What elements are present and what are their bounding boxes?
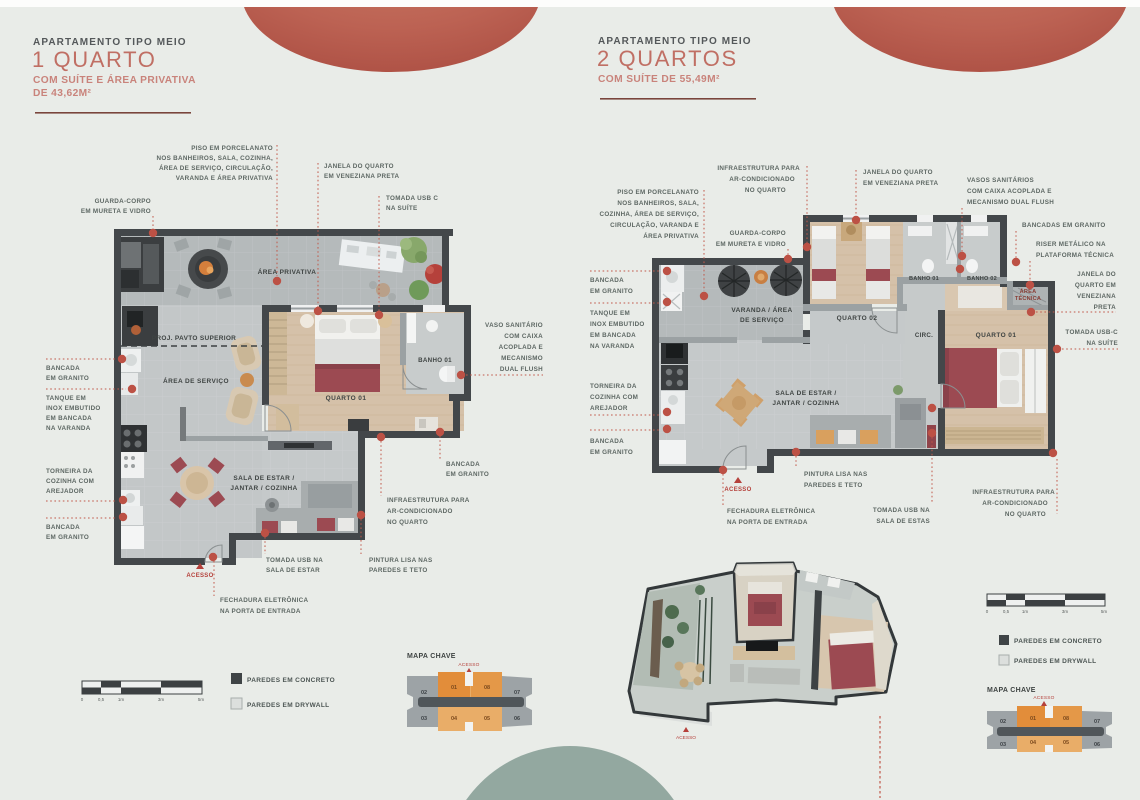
svg-text:EM GRANITO: EM GRANITO — [446, 471, 489, 478]
svg-text:ACESSO: ACESSO — [458, 662, 479, 668]
svg-text:BANCADA: BANCADA — [590, 438, 624, 445]
svg-text:3m: 3m — [158, 697, 165, 702]
svg-text:06: 06 — [514, 716, 520, 722]
svg-text:NA SUÍTE: NA SUÍTE — [386, 203, 418, 212]
svg-text:CIRCULAÇÃO, VARANDA E: CIRCULAÇÃO, VARANDA E — [610, 220, 699, 229]
svg-text:EM GRANITO: EM GRANITO — [46, 534, 89, 541]
svg-text:COZINHA COM: COZINHA COM — [46, 478, 94, 485]
svg-text:DE SERVIÇO: DE SERVIÇO — [740, 317, 784, 324]
svg-text:PLATAFORMA TÉCNICA: PLATAFORMA TÉCNICA — [1036, 250, 1114, 259]
svg-text:0,5: 0,5 — [1003, 609, 1010, 614]
svg-text:ACESSO: ACESSO — [724, 487, 751, 493]
svg-text:COZINHA COM: COZINHA COM — [590, 394, 638, 401]
svg-text:AREJADOR: AREJADOR — [46, 488, 84, 495]
svg-text:EM GRANITO: EM GRANITO — [590, 288, 633, 295]
svg-text:ÁREA PRIVATIVA: ÁREA PRIVATIVA — [258, 267, 317, 276]
svg-text:TOMADA USB NA: TOMADA USB NA — [266, 557, 323, 564]
svg-text:1m: 1m — [1022, 609, 1029, 614]
svg-text:BANCADA: BANCADA — [590, 277, 624, 284]
svg-text:NA PORTA DE ENTRADA: NA PORTA DE ENTRADA — [727, 519, 808, 526]
svg-text:INFRAESTRUTURA PARA: INFRAESTRUTURA PARA — [717, 165, 800, 172]
svg-text:PAREDES EM DRYWALL: PAREDES EM DRYWALL — [1014, 658, 1097, 665]
svg-text:EM GRANITO: EM GRANITO — [590, 449, 633, 456]
svg-text:TORNEIRA DA: TORNEIRA DA — [46, 468, 93, 475]
svg-text:ACOPLADA E: ACOPLADA E — [499, 344, 543, 351]
svg-text:06: 06 — [1094, 742, 1100, 748]
svg-text:07: 07 — [514, 690, 520, 696]
svg-text:VASO SANITÁRIO: VASO SANITÁRIO — [485, 320, 543, 329]
svg-text:PISO EM PORCELANATO: PISO EM PORCELANATO — [617, 189, 699, 196]
svg-text:CIRC.: CIRC. — [915, 332, 933, 339]
svg-text:SALA DE ESTAS: SALA DE ESTAS — [876, 518, 930, 525]
svg-text:PRETA: PRETA — [1094, 304, 1117, 311]
svg-text:EM GRANITO: EM GRANITO — [46, 375, 89, 382]
svg-text:EM MURETA E VIDRO: EM MURETA E VIDRO — [81, 208, 151, 215]
svg-text:1 QUARTO: 1 QUARTO — [32, 47, 156, 72]
svg-text:05: 05 — [484, 716, 490, 722]
svg-text:NA VARANDA: NA VARANDA — [590, 343, 635, 350]
svg-text:QUARTO 01: QUARTO 01 — [326, 395, 367, 402]
svg-text:VASOS SANITÁRIOS: VASOS SANITÁRIOS — [967, 175, 1034, 184]
svg-text:FECHADURA ELETRÔNICA: FECHADURA ELETRÔNICA — [220, 595, 308, 604]
svg-text:02: 02 — [1000, 719, 1006, 725]
svg-text:PAREDES EM CONCRETO: PAREDES EM CONCRETO — [247, 677, 335, 684]
svg-text:01: 01 — [1030, 716, 1036, 722]
svg-text:JANELA DO QUARTO: JANELA DO QUARTO — [324, 163, 394, 170]
svg-text:5m: 5m — [198, 697, 205, 702]
svg-text:QUARTO EM: QUARTO EM — [1075, 282, 1116, 289]
svg-text:SALA DE ESTAR /: SALA DE ESTAR / — [233, 475, 294, 482]
svg-text:BANCADA: BANCADA — [46, 524, 80, 531]
svg-text:MAPA CHAVE: MAPA CHAVE — [987, 687, 1036, 694]
svg-text:BANHO 01: BANHO 01 — [418, 357, 452, 364]
svg-text:BANHO 01: BANHO 01 — [909, 276, 939, 282]
svg-text:PROJ. PAVTO SUPERIOR: PROJ. PAVTO SUPERIOR — [152, 335, 236, 342]
svg-text:TOMADA USB C: TOMADA USB C — [386, 195, 438, 202]
svg-text:MECANISMO DUAL FLUSH: MECANISMO DUAL FLUSH — [967, 199, 1054, 206]
svg-text:JANELA DO QUARTO: JANELA DO QUARTO — [863, 169, 933, 176]
svg-text:BANCADA: BANCADA — [46, 365, 80, 372]
svg-text:COM SUÍTE DE 55,49M²: COM SUÍTE DE 55,49M² — [598, 72, 720, 85]
svg-text:COZINHA, ÁREA DE SERVIÇO,: COZINHA, ÁREA DE SERVIÇO, — [599, 209, 699, 218]
svg-text:QUARTO 01: QUARTO 01 — [976, 332, 1017, 339]
svg-text:VARANDA E ÁREA PRIVATIVA: VARANDA E ÁREA PRIVATIVA — [176, 173, 273, 182]
svg-text:GUARDA-CORPO: GUARDA-CORPO — [730, 230, 786, 237]
svg-text:RISER METÁLICO NA: RISER METÁLICO NA — [1036, 239, 1106, 248]
svg-text:04: 04 — [1030, 740, 1037, 746]
svg-text:ÁREA DE SERVIÇO: ÁREA DE SERVIÇO — [163, 376, 229, 385]
svg-text:2 QUARTOS: 2 QUARTOS — [597, 46, 738, 71]
svg-text:PINTURA LISA NAS: PINTURA LISA NAS — [804, 471, 867, 478]
svg-text:5m: 5m — [1101, 609, 1108, 614]
svg-text:05: 05 — [1063, 740, 1069, 746]
svg-text:ÁREA: ÁREA — [1020, 288, 1037, 295]
svg-text:EM MURETA E VIDRO: EM MURETA E VIDRO — [716, 241, 786, 248]
svg-text:EM BANCADA: EM BANCADA — [590, 332, 636, 339]
svg-text:03: 03 — [1000, 742, 1006, 748]
svg-text:TOMADA USB NA: TOMADA USB NA — [873, 507, 930, 514]
svg-text:TANQUE EM: TANQUE EM — [46, 395, 86, 402]
svg-text:FECHADURA ELETRÔNICA: FECHADURA ELETRÔNICA — [727, 506, 815, 515]
svg-text:ACESSO: ACESSO — [186, 573, 213, 579]
svg-text:PAREDES EM DRYWALL: PAREDES EM DRYWALL — [247, 702, 330, 709]
svg-text:NA VARANDA: NA VARANDA — [46, 425, 91, 432]
svg-text:INFRAESTRUTURA PARA: INFRAESTRUTURA PARA — [972, 489, 1055, 496]
svg-text:03: 03 — [421, 716, 427, 722]
svg-text:ACESSO: ACESSO — [676, 735, 696, 741]
svg-text:NOS BANHEIROS, SALA, COZINHA,: NOS BANHEIROS, SALA, COZINHA, — [157, 155, 273, 162]
svg-text:PISO EM PORCELANATO: PISO EM PORCELANATO — [191, 145, 273, 152]
svg-text:VENEZIANA: VENEZIANA — [1077, 293, 1116, 300]
svg-text:PAREDES E TETO: PAREDES E TETO — [804, 482, 863, 489]
svg-text:MECANISMO: MECANISMO — [501, 355, 543, 362]
svg-text:VARANDA / ÁREA: VARANDA / ÁREA — [731, 305, 792, 314]
svg-text:GUARDA-CORPO: GUARDA-CORPO — [95, 198, 151, 205]
svg-text:NOS BANHEIROS, SALA,: NOS BANHEIROS, SALA, — [617, 200, 699, 207]
svg-text:JANTAR / COZINHA: JANTAR / COZINHA — [772, 400, 839, 407]
svg-text:COM CAIXA ACOPLADA E: COM CAIXA ACOPLADA E — [967, 188, 1052, 195]
svg-text:TORNEIRA DA: TORNEIRA DA — [590, 383, 637, 390]
svg-text:01: 01 — [451, 685, 457, 691]
svg-text:SALA DE ESTAR: SALA DE ESTAR — [266, 567, 320, 574]
svg-text:AR-CONDICIONADO: AR-CONDICIONADO — [387, 508, 453, 515]
svg-text:QUARTO 02: QUARTO 02 — [837, 315, 878, 322]
svg-text:NO QUARTO: NO QUARTO — [387, 519, 428, 526]
svg-text:INFRAESTRUTURA PARA: INFRAESTRUTURA PARA — [387, 497, 470, 504]
svg-text:TOMADA USB-C: TOMADA USB-C — [1065, 329, 1118, 336]
svg-text:INOX EMBUTIDO: INOX EMBUTIDO — [590, 321, 645, 328]
svg-text:04: 04 — [451, 716, 458, 722]
svg-text:0,5: 0,5 — [98, 697, 105, 702]
svg-text:02: 02 — [421, 690, 427, 696]
svg-text:ACESSO: ACESSO — [1033, 695, 1054, 701]
svg-text:BANHO 02: BANHO 02 — [967, 276, 997, 282]
svg-text:TÉCNICA: TÉCNICA — [1015, 294, 1041, 302]
svg-text:BANCADA: BANCADA — [446, 461, 480, 468]
svg-text:PINTURA LISA NAS: PINTURA LISA NAS — [369, 557, 432, 564]
svg-text:BANCADAS EM GRANITO: BANCADAS EM GRANITO — [1022, 222, 1106, 229]
svg-text:NA SUÍTE: NA SUÍTE — [1086, 338, 1118, 347]
svg-text:ÁREA PRIVATIVA: ÁREA PRIVATIVA — [643, 231, 699, 240]
svg-text:DE 43,62M²: DE 43,62M² — [33, 88, 92, 99]
svg-text:NO QUARTO: NO QUARTO — [1005, 511, 1046, 518]
svg-text:1m: 1m — [118, 697, 125, 702]
svg-text:JANELA DO: JANELA DO — [1077, 271, 1116, 278]
svg-text:MAPA CHAVE: MAPA CHAVE — [407, 653, 456, 660]
svg-text:TANQUE EM: TANQUE EM — [590, 310, 630, 317]
svg-text:DUAL FLUSH: DUAL FLUSH — [500, 366, 543, 373]
svg-text:07: 07 — [1094, 719, 1100, 725]
svg-text:AREJADOR: AREJADOR — [590, 405, 628, 412]
svg-text:NO QUARTO: NO QUARTO — [745, 187, 786, 194]
svg-text:PAREDES EM CONCRETO: PAREDES EM CONCRETO — [1014, 638, 1102, 645]
svg-text:INOX EMBUTIDO: INOX EMBUTIDO — [46, 405, 101, 412]
svg-text:3m: 3m — [1062, 609, 1069, 614]
svg-text:NA PORTA DE ENTRADA: NA PORTA DE ENTRADA — [220, 608, 301, 615]
svg-text:SALA DE ESTAR /: SALA DE ESTAR / — [775, 390, 836, 397]
svg-text:JANTAR / COZINHA: JANTAR / COZINHA — [230, 485, 297, 492]
svg-text:COM SUÍTE E ÁREA PRIVATIVA: COM SUÍTE E ÁREA PRIVATIVA — [33, 73, 196, 86]
svg-text:EM BANCADA: EM BANCADA — [46, 415, 92, 422]
svg-text:COM CAIXA: COM CAIXA — [504, 333, 543, 340]
svg-text:AR-CONDICIONADO: AR-CONDICIONADO — [982, 500, 1048, 507]
svg-text:08: 08 — [484, 685, 490, 691]
svg-text:ÁREA DE SERVIÇO, CIRCULAÇÃO,: ÁREA DE SERVIÇO, CIRCULAÇÃO, — [159, 163, 273, 172]
svg-text:08: 08 — [1063, 716, 1069, 722]
svg-text:EM VENEZIANA PRETA: EM VENEZIANA PRETA — [863, 180, 939, 187]
svg-text:EM VENEZIANA PRETA: EM VENEZIANA PRETA — [324, 173, 400, 180]
svg-text:PAREDES E TETO: PAREDES E TETO — [369, 567, 428, 574]
svg-text:AR-CONDICIONADO: AR-CONDICIONADO — [729, 176, 795, 183]
